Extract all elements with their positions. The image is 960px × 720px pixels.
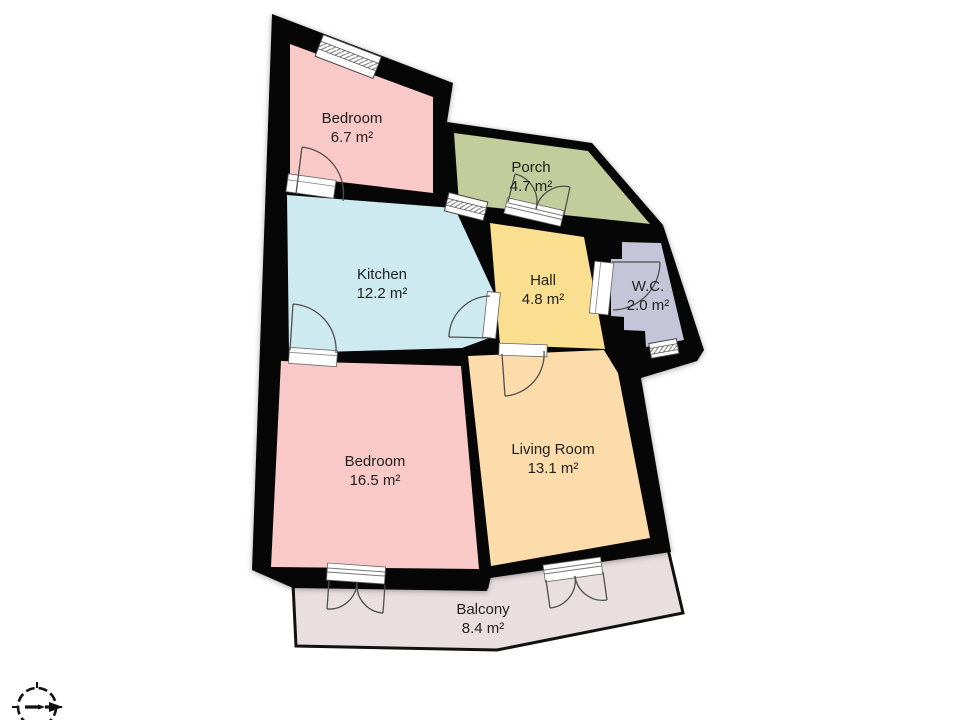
room-name-porch: Porch — [511, 159, 550, 176]
room-area-living-room: 13.1 m² — [528, 460, 579, 477]
room-name-hall: Hall — [530, 272, 556, 289]
room-area-bedroom-2: 16.5 m² — [350, 472, 401, 489]
door-opening-hall-living — [499, 343, 547, 357]
room-area-porch: 4.7 m² — [510, 178, 553, 195]
room-name-wc: W.C. — [632, 278, 665, 295]
room-name-bedroom-1: Bedroom — [322, 110, 383, 127]
french-door-sill-bedroom-2 — [327, 563, 386, 584]
room-area-hall: 4.8 m² — [522, 291, 565, 308]
room-area-kitchen: 12.2 m² — [357, 285, 408, 302]
room-area-bedroom-1: 6.7 m² — [331, 129, 374, 146]
room-name-balcony: Balcony — [456, 601, 510, 618]
room-area-wc: 2.0 m² — [627, 297, 670, 314]
door-opening-kitchen-bottom — [289, 347, 338, 366]
room-name-living-room: Living Room — [511, 441, 594, 458]
room-area-balcony: 8.4 m² — [462, 620, 505, 637]
compass-icon — [12, 682, 63, 720]
floor-plan-page: Bedroom 6.7 m² Porch 4.7 m² Kitchen 12.2… — [0, 0, 960, 720]
floor-plan-svg: Bedroom 6.7 m² Porch 4.7 m² Kitchen 12.2… — [0, 0, 960, 720]
room-name-kitchen: Kitchen — [357, 266, 407, 283]
room-name-bedroom-2: Bedroom — [345, 453, 406, 470]
